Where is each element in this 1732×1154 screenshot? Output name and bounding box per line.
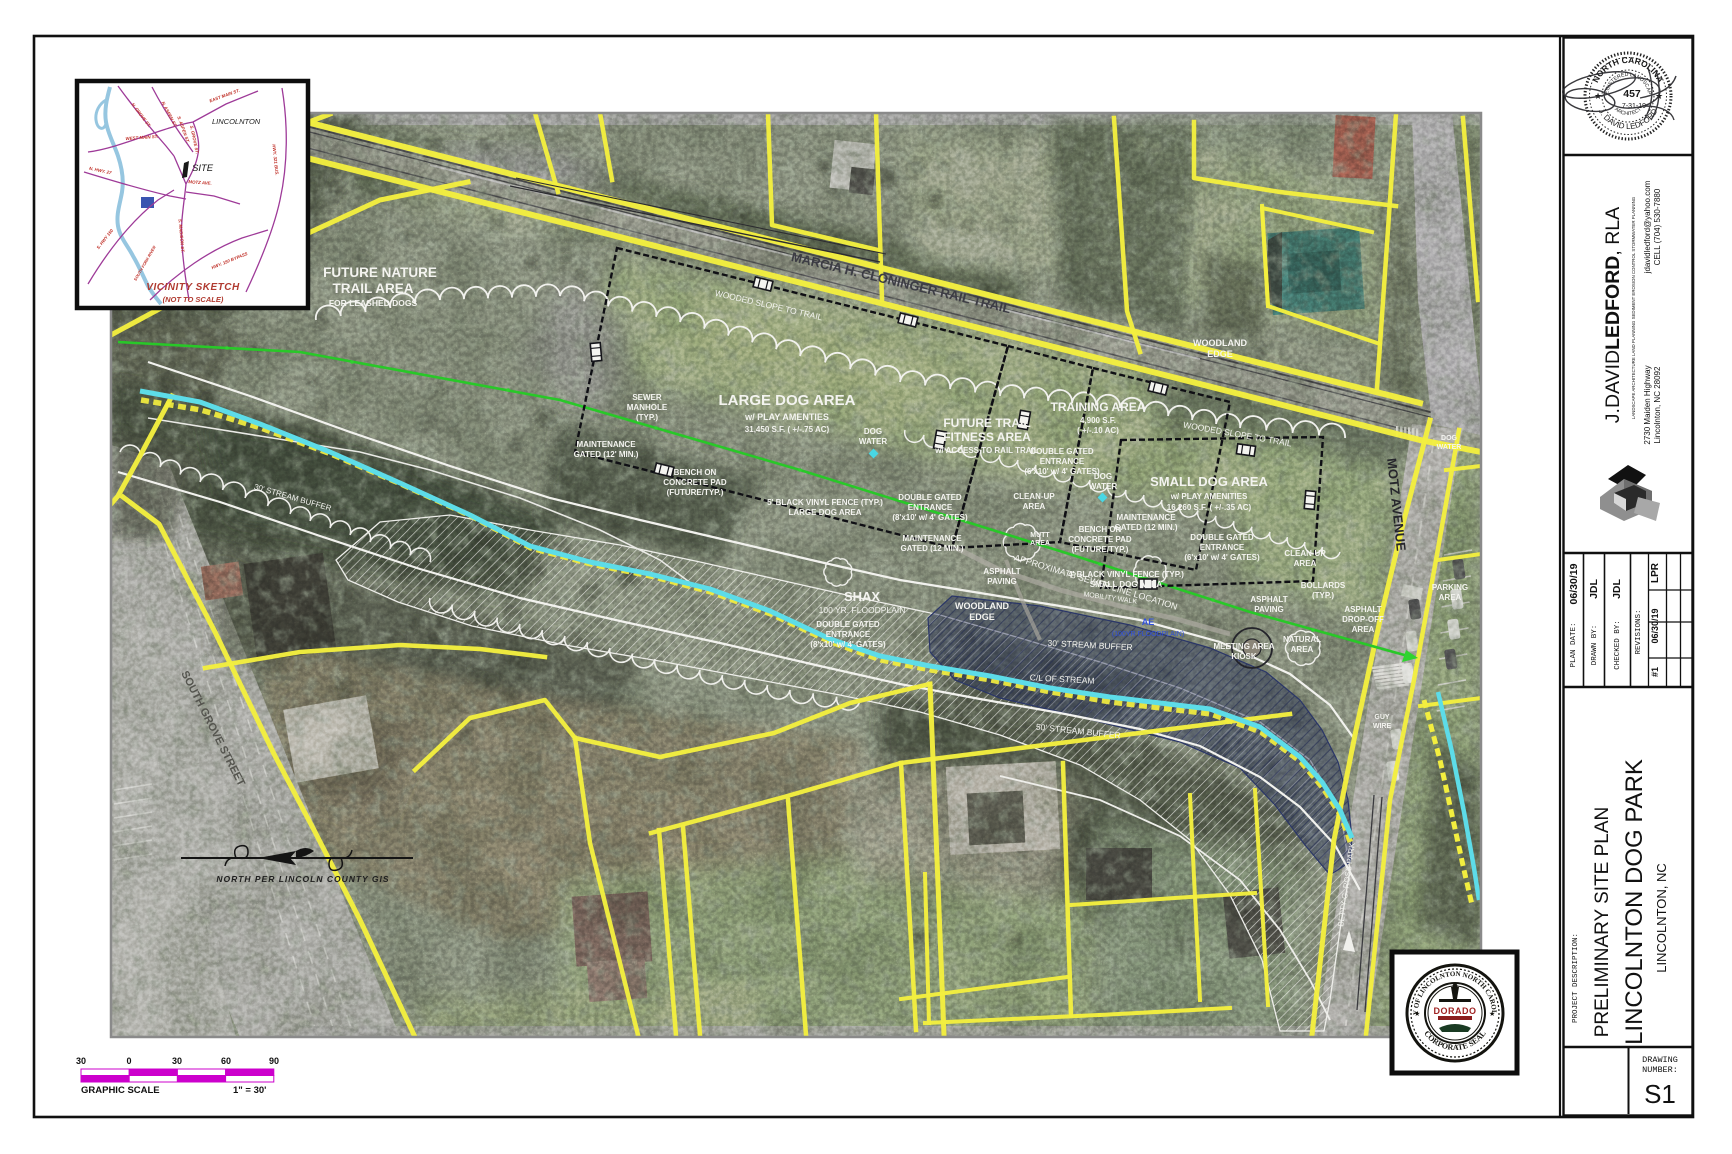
svg-text:2730 Maiden Highway: 2730 Maiden Highway — [1643, 365, 1652, 444]
svg-text:FOR LEASHED DOGS: FOR LEASHED DOGS — [329, 298, 418, 308]
svg-text:VICINITY SKETCH: VICINITY SKETCH — [146, 282, 240, 293]
svg-text:Lincolnton, NC 28092: Lincolnton, NC 28092 — [1653, 366, 1662, 443]
svg-text:TRAINING AREA: TRAINING AREA — [1051, 400, 1146, 414]
svg-text:AREA: AREA — [1352, 625, 1375, 634]
svg-text:CONCRETE PAD: CONCRETE PAD — [663, 478, 727, 487]
svg-text:AREA: AREA — [1439, 593, 1462, 602]
svg-text:EDGE: EDGE — [969, 612, 995, 622]
svg-text:AREA: AREA — [1030, 540, 1050, 547]
svg-text:ASPHALT: ASPHALT — [1250, 595, 1287, 604]
svg-text:AE: AE — [1142, 617, 1155, 627]
svg-text:0: 0 — [126, 1056, 131, 1066]
svg-text:LPR: LPR — [1650, 562, 1661, 583]
svg-text:w/ PLAY AMENTIES: w/ PLAY AMENTIES — [744, 412, 829, 422]
svg-text:J.DAVIDLEDFORD, RLA: J.DAVIDLEDFORD, RLA — [1602, 207, 1624, 423]
svg-text:LINCOLNTON, NC: LINCOLNTON, NC — [1654, 863, 1669, 973]
svg-text:SITE: SITE — [192, 163, 214, 174]
svg-text:CLEAN-UP: CLEAN-UP — [1284, 549, 1326, 558]
svg-text:MUTT: MUTT — [1030, 532, 1050, 539]
svg-text:WATER: WATER — [1437, 444, 1462, 451]
svg-text:w/ ACCESS TO RAIL TRAIL: w/ ACCESS TO RAIL TRAIL — [934, 446, 1039, 455]
svg-text:LINCOLNTON: LINCOLNTON — [212, 117, 261, 126]
svg-text:SEWER: SEWER — [632, 393, 662, 402]
svg-text:PRELIMINARY SITE PLAN: PRELIMINARY SITE PLAN — [1592, 807, 1613, 1038]
svg-text:(TYP.): (TYP.) — [636, 413, 658, 422]
svg-text:DRAWING: DRAWING — [1642, 1055, 1678, 1065]
svg-text:1" = 30': 1" = 30' — [233, 1085, 266, 1096]
svg-text:PROJECT DESCRIPTION:: PROJECT DESCRIPTION: — [1572, 933, 1580, 1023]
svg-text:★: ★ — [1414, 1010, 1420, 1018]
svg-text:★: ★ — [1489, 1010, 1495, 1018]
svg-text:(NOT TO SCALE): (NOT TO SCALE) — [163, 295, 224, 304]
svg-text:DOUBLE GATED: DOUBLE GATED — [1030, 447, 1094, 456]
svg-text:DOUBLE GATED: DOUBLE GATED — [1190, 533, 1254, 542]
svg-text:ASPHALT: ASPHALT — [1344, 605, 1381, 614]
svg-text:JDL: JDL — [1611, 578, 1623, 598]
svg-text:w/ PLAY AMENITIES: w/ PLAY AMENITIES — [1170, 492, 1248, 501]
svg-text:DOG: DOG — [1094, 472, 1112, 481]
svg-text:SHAX: SHAX — [844, 589, 880, 604]
svg-text:PAVING: PAVING — [987, 577, 1016, 586]
svg-text:DROP-OFF: DROP-OFF — [1342, 615, 1384, 624]
svg-text:90: 90 — [269, 1056, 279, 1066]
svg-text:jdavidledford@yahoo.com: jdavidledford@yahoo.com — [1643, 180, 1652, 274]
svg-text:DOG: DOG — [1441, 435, 1458, 442]
svg-text:#1: #1 — [1650, 667, 1660, 677]
svg-text:DOUBLE GATED: DOUBLE GATED — [816, 620, 880, 629]
svg-text:DOG: DOG — [864, 427, 882, 436]
svg-text:CHECKED BY:: CHECKED BY: — [1614, 620, 1622, 670]
svg-text:S1: S1 — [1644, 1079, 1676, 1109]
svg-text:CONCRETE PAD: CONCRETE PAD — [1068, 535, 1132, 544]
svg-text:LARGE DOG AREA: LARGE DOG AREA — [788, 508, 861, 517]
svg-text:WATER: WATER — [859, 437, 888, 446]
svg-text:CLEAN-UP: CLEAN-UP — [1013, 492, 1055, 501]
svg-text:ENTRANCE: ENTRANCE — [826, 630, 871, 639]
svg-text:BENCH ON: BENCH ON — [674, 468, 717, 477]
svg-text:JDL: JDL — [1588, 578, 1600, 598]
svg-text:06/30/19: 06/30/19 — [1568, 563, 1580, 604]
svg-text:ENTRANCE: ENTRANCE — [1200, 543, 1245, 552]
svg-text:GUY: GUY — [1374, 714, 1390, 721]
svg-text:DOUBLE GATED: DOUBLE GATED — [898, 493, 962, 502]
svg-text:CELL (704) 530-7880: CELL (704) 530-7880 — [1653, 188, 1662, 265]
svg-text:5' BLACK VINYL FENCE (TYP.): 5' BLACK VINYL FENCE (TYP.) — [767, 498, 883, 507]
svg-text:(100YR FLOODPLAIN): (100YR FLOODPLAIN) — [1112, 631, 1184, 638]
svg-text:( +/-.10 AC): ( +/-.10 AC) — [1077, 426, 1119, 435]
svg-text:AREA: AREA — [1294, 559, 1317, 568]
svg-text:GATED (12 MIN.): GATED (12 MIN.) — [1115, 523, 1178, 532]
svg-text:MEETING AREA: MEETING AREA — [1213, 642, 1274, 651]
svg-text:LANDSCAPE ARCHITECTURE LAND: LANDSCAPE ARCHITECTURE LAND PLANNING SED… — [1631, 196, 1636, 419]
svg-text:WOODLAND: WOODLAND — [1193, 338, 1247, 348]
svg-text:TRAIL AREA: TRAIL AREA — [333, 281, 414, 296]
svg-text:WOODLAND: WOODLAND — [955, 601, 1009, 611]
svg-text:(6'x10' w/ 4' GATES): (6'x10' w/ 4' GATES) — [1184, 553, 1260, 562]
svg-text:ASPHALT: ASPHALT — [983, 567, 1020, 576]
svg-text:NUMBER:: NUMBER: — [1642, 1065, 1678, 1075]
svg-text:(FUTURE/TYP.): (FUTURE/TYP.) — [667, 488, 724, 497]
svg-text:PLAN DATE:: PLAN DATE: — [1570, 622, 1578, 667]
svg-text:GATED (12 MIN.): GATED (12 MIN.) — [901, 544, 964, 553]
svg-text:MAINTENANCE: MAINTENANCE — [1116, 513, 1176, 522]
svg-text:60: 60 — [221, 1056, 231, 1066]
svg-text:NORTH PER LINCOLN COUNTY G: NORTH PER LINCOLN COUNTY GIS — [216, 874, 389, 884]
svg-text:LARGE DOG AREA: LARGE DOG AREA — [719, 392, 856, 409]
svg-text:REVISIONS:: REVISIONS: — [1635, 609, 1643, 654]
svg-text:ENTRANCE: ENTRANCE — [1040, 457, 1085, 466]
svg-text:31,450 S.F. ( +/-.75 AC): 31,450 S.F. ( +/-.75 AC) — [745, 425, 830, 434]
svg-text:GRAPHIC SCALE: GRAPHIC SCALE — [81, 1085, 160, 1096]
svg-text:(FUTURE/TYP.): (FUTURE/TYP.) — [1072, 545, 1129, 554]
svg-text:WIRE: WIRE — [1373, 723, 1392, 730]
svg-text:LINCOLNTON DOG PARK: LINCOLNTON DOG PARK — [1621, 759, 1648, 1045]
svg-text:4,900 S.F.: 4,900 S.F. — [1080, 416, 1116, 425]
svg-text:FUTURE TRAIL: FUTURE TRAIL — [943, 416, 1030, 430]
svg-text:(8'x10' w/ 4' GATES): (8'x10' w/ 4' GATES) — [892, 513, 968, 522]
svg-text:FUTURE NATURE: FUTURE NATURE — [323, 265, 437, 280]
svg-text:30: 30 — [76, 1056, 86, 1066]
svg-text:16,260 S.F. ( +/-.35 AC): 16,260 S.F. ( +/-.35 AC) — [1167, 503, 1252, 512]
svg-text:FITNESS AREA: FITNESS AREA — [943, 430, 1031, 444]
svg-text:KIOSK: KIOSK — [1231, 652, 1257, 661]
svg-text:WATER: WATER — [1089, 482, 1118, 491]
svg-text:PARKING: PARKING — [1432, 583, 1468, 592]
svg-text:EDGE: EDGE — [1207, 349, 1233, 359]
svg-text:DORADO: DORADO — [1434, 1006, 1477, 1016]
svg-text:BENCH ON: BENCH ON — [1079, 525, 1122, 534]
svg-text:ENTRANCE: ENTRANCE — [908, 503, 953, 512]
svg-text:NATURAL: NATURAL — [1283, 635, 1321, 644]
svg-text:PAVING: PAVING — [1254, 605, 1283, 614]
svg-text:MAINTENANCE: MAINTENANCE — [576, 440, 636, 449]
svg-text:MAINTENANCE: MAINTENANCE — [902, 534, 962, 543]
svg-text:100 YR. FLOODPLAIN: 100 YR. FLOODPLAIN — [819, 605, 906, 615]
svg-text:AREA: AREA — [1291, 645, 1314, 654]
svg-text:30: 30 — [172, 1056, 182, 1066]
svg-text:DRAWN BY:: DRAWN BY: — [1591, 625, 1599, 666]
svg-text:(8'x10' w/ 4' GATES): (8'x10' w/ 4' GATES) — [810, 640, 886, 649]
svg-text:MANHOLE: MANHOLE — [627, 403, 668, 412]
svg-text:GATED (12' MIN.): GATED (12' MIN.) — [574, 450, 639, 459]
svg-text:SMALL DOG AREA: SMALL DOG AREA — [1150, 474, 1268, 489]
svg-text:(6'x10' w/ 4' GATES): (6'x10' w/ 4' GATES) — [1024, 467, 1100, 476]
svg-text:457: 457 — [1623, 88, 1641, 100]
svg-text:BOLLARDS: BOLLARDS — [1301, 581, 1346, 590]
svg-text:06/30/19: 06/30/19 — [1650, 608, 1660, 643]
svg-text:(TYP.): (TYP.) — [1312, 591, 1334, 600]
svg-text:AREA: AREA — [1023, 502, 1046, 511]
